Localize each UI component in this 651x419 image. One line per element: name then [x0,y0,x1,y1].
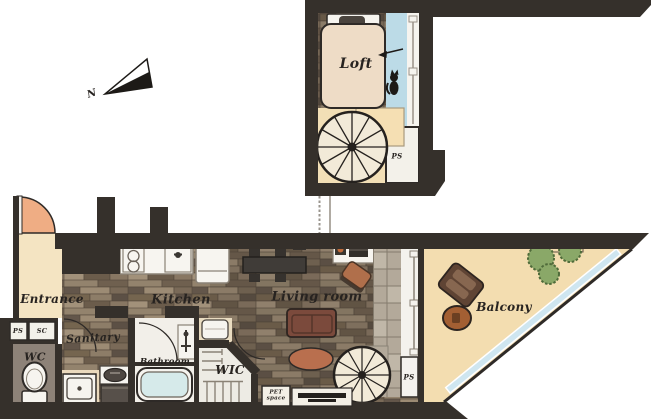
bottom-wall [0,402,468,419]
rug [289,348,333,370]
floor-plan-drawing [0,0,651,419]
ps-shaft-left [10,322,27,340]
main-floor-section [0,196,649,419]
tv-board [292,388,352,406]
bathtub [137,368,192,401]
bathroom-sink-unit [178,325,195,359]
dining-chair [275,249,286,257]
dining-table [243,257,306,273]
pet-space-box [262,386,290,406]
bed [321,14,385,108]
dining-chair [275,274,286,282]
kitchen-counter [120,245,193,274]
sofa [287,309,336,337]
loft-section [305,0,651,196]
toilet [22,363,47,404]
spiral-staircase-loft [317,112,387,182]
north-arrow-icon [105,59,152,94]
dining-chair [249,249,260,257]
vanity-sink [100,366,130,403]
floor-plan: Loft PS Entrance Kitchen Living room PS … [0,0,651,419]
level-connector-lines [320,196,331,233]
tv [298,393,346,398]
dining-chair [249,274,260,282]
washing-machine [63,374,96,403]
balcony-sliding-door [401,249,418,357]
refrigerator [196,246,229,283]
entrance-door-swing [19,197,55,233]
balcony-area [423,240,632,402]
living-ps-shaft [401,357,418,397]
balcony-table [443,306,471,330]
loft-window [407,13,419,127]
sc-shaft [29,322,55,340]
